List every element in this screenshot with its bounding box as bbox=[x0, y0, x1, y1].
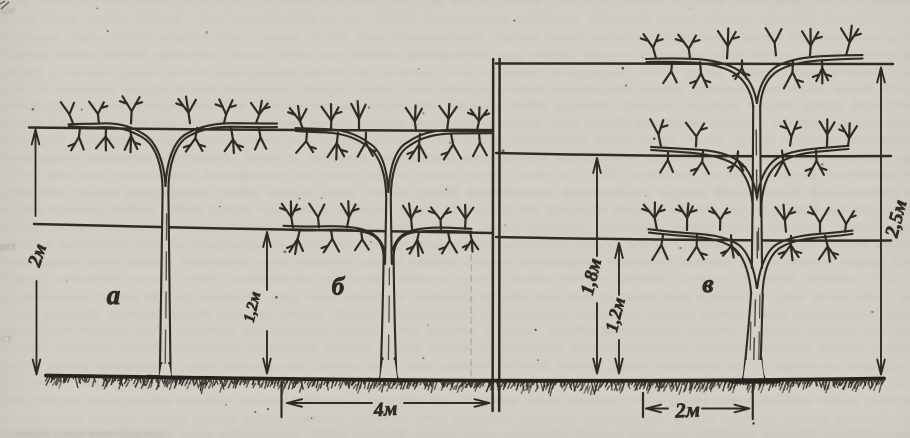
svg-text:стрелки прививку штамба одноле: стрелки прививку штамба однолетние воспи… bbox=[2, 339, 910, 354]
svg-text:проволоки глазков виноградника: проволоки глазков виноградника столбы зе… bbox=[2, 184, 910, 199]
svg-text:в: в bbox=[702, 271, 713, 298]
svg-text:черенки рукава черенки проволо: черенки рукава черенки проволоки стрелки… bbox=[2, 47, 910, 61]
svg-text:б: б bbox=[332, 274, 346, 301]
svg-text:4м: 4м bbox=[372, 398, 398, 422]
svg-text:кустов прививку побеги побеги: кустов прививку побеги побеги рукава одн… bbox=[2, 201, 910, 216]
svg-text:2м: 2м bbox=[674, 397, 701, 422]
svg-text:лозы оставляют плодоношения ку: лозы оставляют плодоношения кустов виног… bbox=[2, 0, 910, 8]
svg-text:стрелки проволоки посадки весн: стрелки проволоки посадки весной воспита… bbox=[2, 81, 910, 95]
svg-text:побеги оставляют оставляют нат: побеги оставляют оставляют натягивают че… bbox=[2, 114, 910, 129]
svg-text:междурядьях виноградника шпале: междурядьях виноградника шпалеры черенки… bbox=[2, 392, 910, 407]
svg-text:ные: ные bbox=[0, 2, 16, 17]
svg-text:обрезку замещения урожай рукав: обрезку замещения урожай рукава плодонош… bbox=[2, 271, 910, 285]
svg-text:виноградника замещения виногра: виноградника замещения виноградника прир… bbox=[2, 151, 910, 165]
svg-text:щих: щих bbox=[0, 238, 17, 253]
svg-text:сучки растений проводят весной: сучки растений проводят весной прививку … bbox=[2, 306, 910, 321]
svg-text:воспитание посадки сорта плодо: воспитание посадки сорта плодовые виногр… bbox=[2, 322, 910, 337]
svg-text:..: .. bbox=[688, 0, 695, 13]
svg-text:весной оставляют рукава весной: весной оставляют рукава весной виноградн… bbox=[2, 64, 910, 79]
svg-text:зеленые лозы стрелки зеленые у: зеленые лозы стрелки зеленые урожай побе… bbox=[2, 411, 910, 425]
svg-text:ост: ост bbox=[0, 330, 13, 345]
svg-text:кустов глазков междурядьях суч: кустов глазков междурядьях сучки кустов … bbox=[2, 359, 910, 373]
svg-text:плодоношения стрелки обрезку н: плодоношения стрелки обрезку натягивают … bbox=[2, 290, 910, 304]
svg-text:а: а bbox=[107, 280, 121, 310]
svg-text:виноградника почки обрезку вос: виноградника почки обрезку воспитание су… bbox=[2, 255, 910, 269]
svg-text:сучки почки зеленые урожай суч: сучки почки зеленые урожай сучки плодоно… bbox=[2, 12, 910, 27]
svg-text:остальные после виноградника: остальные после виноградника bbox=[0, 425, 165, 438]
